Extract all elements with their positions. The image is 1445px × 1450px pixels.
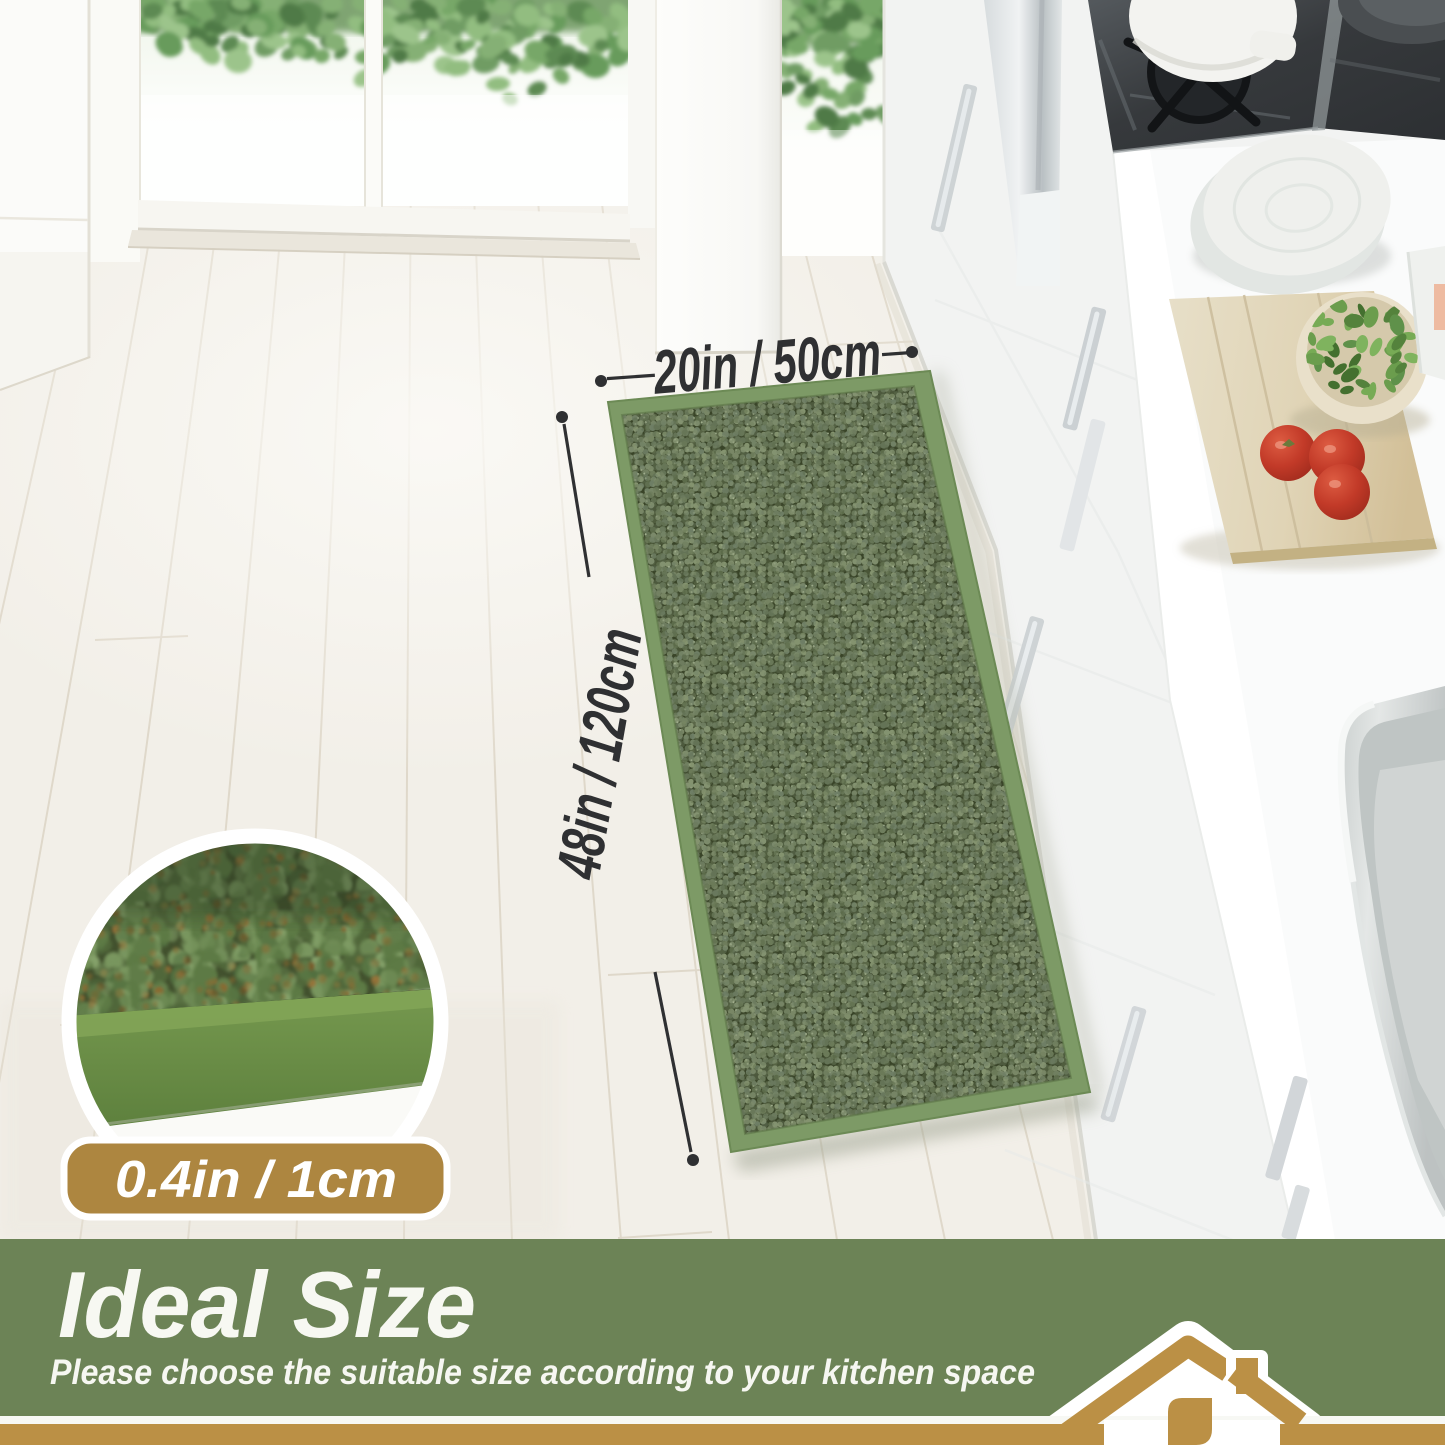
svg-text:0.4in / 1cm: 0.4in / 1cm (115, 1151, 397, 1209)
svg-text:Ideal Size: Ideal Size (58, 1252, 476, 1357)
svg-text:Please choose the suitable siz: Please choose the suitable size accordin… (50, 1353, 1035, 1392)
